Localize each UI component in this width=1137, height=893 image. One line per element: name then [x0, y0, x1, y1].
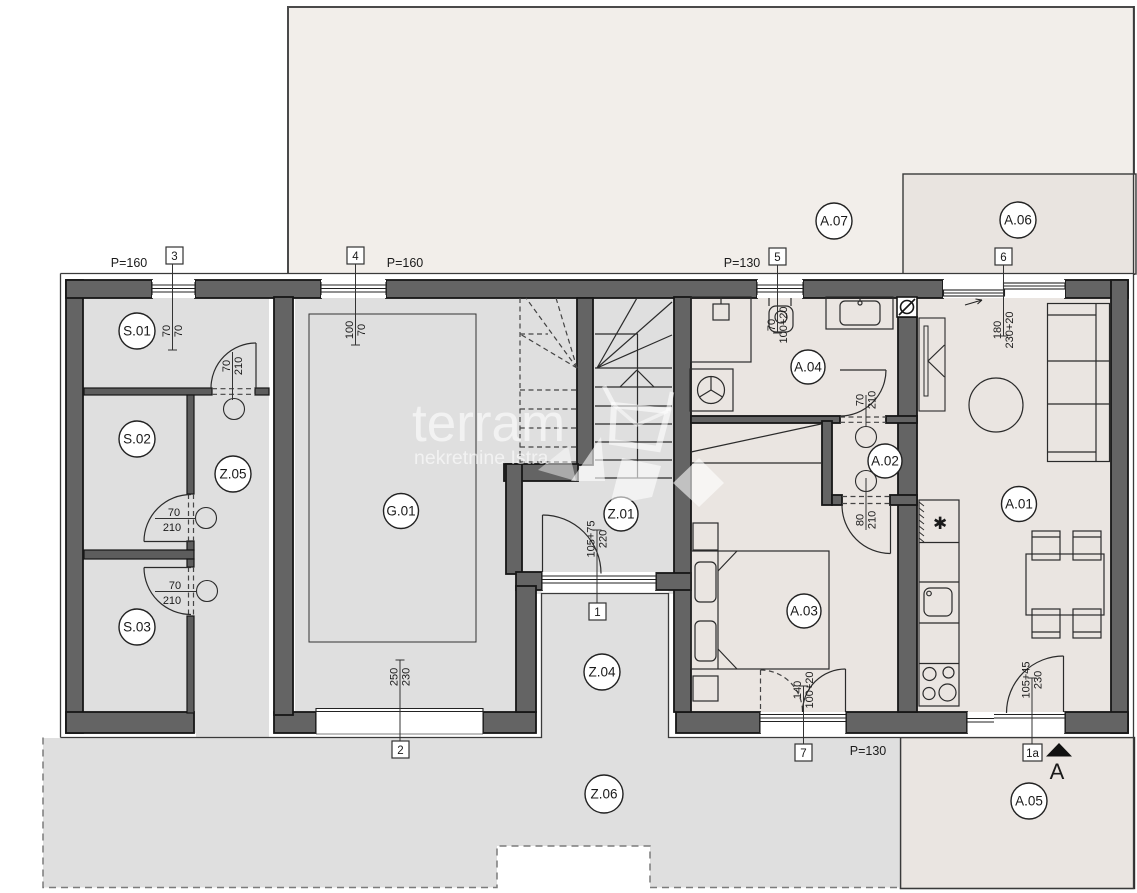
svg-text:230: 230: [401, 668, 413, 686]
svg-text:A.06: A.06: [1004, 213, 1032, 228]
svg-text:100: 100: [344, 321, 356, 339]
svg-text:70: 70: [766, 319, 778, 331]
svg-text:2: 2: [397, 745, 403, 757]
svg-text:100+20: 100+20: [778, 306, 790, 343]
svg-text:210: 210: [163, 595, 181, 607]
svg-text:210: 210: [163, 522, 181, 534]
svg-text:1a: 1a: [1026, 748, 1039, 760]
svg-text:P=160: P=160: [111, 256, 148, 270]
svg-text:100+20: 100+20: [804, 671, 816, 708]
svg-text:A.01: A.01: [1005, 497, 1033, 512]
svg-text:1: 1: [594, 607, 600, 619]
svg-text:70: 70: [356, 324, 368, 336]
svg-text:140: 140: [792, 681, 804, 699]
svg-text:P=130: P=130: [724, 256, 761, 270]
svg-text:70: 70: [161, 325, 173, 337]
svg-text:A: A: [1050, 759, 1065, 784]
svg-text:105+75: 105+75: [586, 520, 598, 557]
svg-text:S.03: S.03: [123, 620, 151, 635]
svg-text:A.07: A.07: [820, 214, 848, 229]
svg-text:70: 70: [168, 507, 180, 519]
svg-text:70: 70: [221, 360, 233, 372]
svg-text:220: 220: [598, 530, 610, 548]
svg-text:✱: ✱: [933, 514, 947, 533]
svg-text:70: 70: [173, 325, 185, 337]
svg-text:S.01: S.01: [123, 324, 151, 339]
svg-text:230+20: 230+20: [1004, 311, 1016, 348]
svg-text:105+45: 105+45: [1021, 661, 1033, 698]
svg-text:5: 5: [774, 252, 780, 264]
svg-text:P=130: P=130: [850, 744, 887, 758]
svg-text:7: 7: [800, 748, 806, 760]
svg-text:Z.05: Z.05: [219, 467, 246, 482]
svg-text:210: 210: [867, 391, 879, 409]
svg-text:210: 210: [233, 357, 245, 375]
svg-text:70: 70: [169, 580, 181, 592]
svg-text:A.02: A.02: [871, 454, 899, 469]
svg-text:nekretnine Istra: nekretnine Istra: [414, 447, 549, 469]
svg-text:A.04: A.04: [794, 360, 822, 375]
svg-text:terram: terram: [412, 394, 565, 453]
svg-text:Z.01: Z.01: [607, 507, 634, 522]
svg-text:A.05: A.05: [1015, 794, 1043, 809]
svg-text:210: 210: [867, 511, 879, 529]
svg-text:G.01: G.01: [386, 504, 415, 519]
svg-text:4: 4: [352, 251, 359, 263]
svg-text:Z.04: Z.04: [588, 665, 616, 680]
svg-text:Z.06: Z.06: [590, 787, 617, 802]
svg-text:230: 230: [1033, 671, 1045, 689]
svg-text:S.02: S.02: [123, 432, 151, 447]
svg-text:80: 80: [855, 514, 867, 526]
svg-text:70: 70: [855, 394, 867, 406]
svg-text:250: 250: [389, 668, 401, 686]
svg-text:A.03: A.03: [790, 604, 818, 619]
svg-text:6: 6: [1000, 252, 1006, 264]
svg-text:3: 3: [171, 251, 177, 263]
svg-text:P=160: P=160: [387, 256, 424, 270]
